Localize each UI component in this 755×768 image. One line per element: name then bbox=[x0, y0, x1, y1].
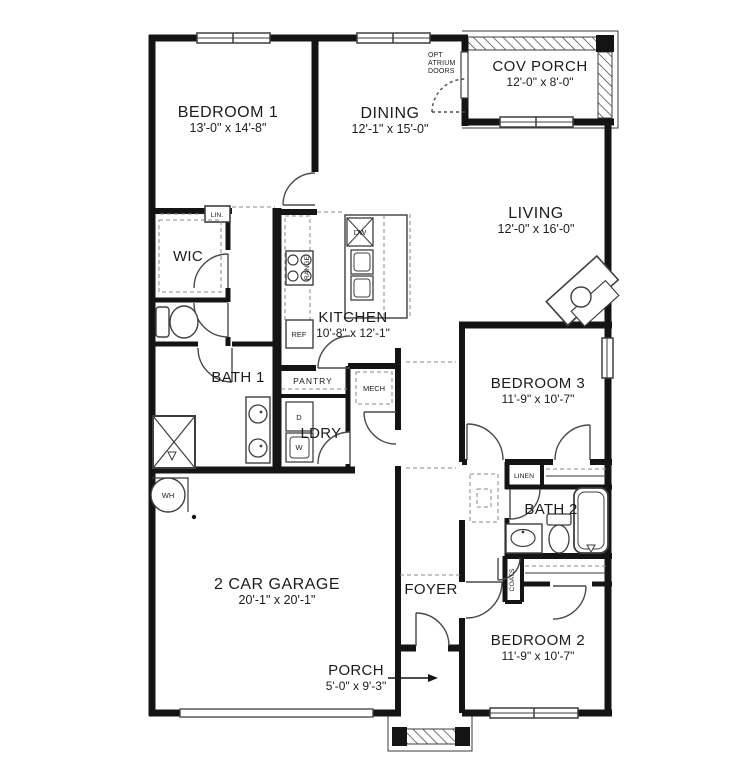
range: RANGE bbox=[286, 251, 313, 285]
coats-label: COATS bbox=[509, 568, 516, 591]
bedroom2-dims: 11'-9" x 10'-7" bbox=[502, 649, 575, 663]
floor-plan-page: LIN. WH bbox=[0, 0, 755, 768]
front-porch-hatched-base bbox=[392, 727, 470, 746]
wic-label: WIC bbox=[173, 248, 203, 265]
dishwasher: DW bbox=[347, 218, 373, 246]
dining-window bbox=[357, 33, 430, 43]
bedroom2-closet-rod bbox=[525, 566, 606, 573]
dining-dims: 12'-1" x 15'-0" bbox=[352, 122, 429, 136]
linen-label: LINEN bbox=[514, 473, 534, 480]
ref-label: REF bbox=[292, 330, 307, 339]
refrigerator: REF bbox=[286, 320, 313, 348]
bedroom2-label: BEDROOM 2 bbox=[491, 632, 586, 649]
bath1-label: BATH 1 bbox=[211, 369, 264, 386]
garage-label: 2 CAR GARAGE bbox=[214, 576, 340, 593]
bedroom2-door bbox=[466, 582, 502, 618]
kitchen-dims: 10'-8" x 12'-1" bbox=[316, 326, 390, 340]
bedroom3-window bbox=[602, 338, 613, 378]
floor-plan-drawing: LIN. WH bbox=[0, 0, 755, 768]
mech-door bbox=[364, 412, 396, 444]
bath2-label: BATH 2 bbox=[524, 501, 577, 518]
dryer-label: D bbox=[296, 413, 302, 422]
linen-closet: LINEN bbox=[514, 473, 534, 480]
kitchen-island: DW bbox=[345, 215, 407, 318]
bedroom1-window bbox=[197, 33, 270, 43]
porch-dims: 5'-0" x 9'-3" bbox=[326, 679, 386, 693]
porch-label: PORCH bbox=[328, 662, 384, 679]
bedroom2-closet-door bbox=[553, 586, 586, 619]
bedroom3-door bbox=[467, 424, 503, 460]
cov-porch-window bbox=[500, 117, 573, 127]
bedroom1-dims: 13'-0" x 14'-8" bbox=[190, 121, 267, 135]
dining-label: DINING bbox=[361, 105, 420, 122]
coats-closet: COATS bbox=[509, 568, 516, 591]
pantry-label: PANTRY bbox=[293, 376, 333, 386]
bedroom1-label: BEDROOM 1 bbox=[178, 104, 279, 121]
bedroom1-door bbox=[283, 173, 315, 205]
garage-dims: 20'-1" x 20'-1" bbox=[239, 593, 316, 607]
tub-bath2 bbox=[574, 488, 608, 553]
atrium-note-line3: DOORS bbox=[428, 68, 455, 75]
bedroom3-closet-door bbox=[555, 425, 590, 460]
atrium-note-line1: OPT bbox=[428, 52, 444, 59]
lin-label: LIN. bbox=[211, 212, 224, 219]
toilet-bath2 bbox=[547, 514, 571, 553]
vanity-bath2 bbox=[506, 524, 542, 553]
front-door bbox=[416, 613, 449, 646]
washer-label: W bbox=[295, 443, 303, 452]
bedroom3-label: BEDROOM 3 bbox=[491, 375, 586, 392]
mech-label: MECH bbox=[363, 384, 385, 393]
opt-atrium-doors-note: OPT ATRIUM DOORS bbox=[428, 52, 456, 75]
cov-porch-label: COV PORCH bbox=[492, 58, 587, 75]
toilet-bath1 bbox=[156, 306, 198, 338]
foyer-label: FOYER bbox=[404, 581, 457, 598]
kitchen-hall-door bbox=[318, 336, 350, 368]
garage-door-opening bbox=[180, 709, 373, 717]
water-heater: WH bbox=[151, 478, 196, 519]
atrium-note-line2: ATRIUM bbox=[428, 60, 456, 67]
dw-label: DW bbox=[354, 228, 367, 237]
wh-label: WH bbox=[162, 491, 175, 500]
bedroom3-dims: 11'-9" x 10'-7" bbox=[502, 392, 575, 406]
cov-porch-dims: 12'-0" x 8'-0" bbox=[506, 75, 573, 89]
kitchen-label: KITCHEN bbox=[318, 309, 387, 326]
toilet-room-door bbox=[194, 303, 228, 337]
ldry-label: LDRY bbox=[301, 425, 342, 442]
vanity-bath1 bbox=[246, 397, 270, 463]
living-label: LIVING bbox=[508, 205, 563, 222]
bedroom2-window bbox=[490, 708, 578, 718]
bedroom3-closet-rod bbox=[546, 469, 606, 476]
range-label: RANGE bbox=[304, 255, 311, 280]
living-dims: 12'-0" x 16'-0" bbox=[498, 222, 575, 236]
mech-closet: MECH bbox=[356, 372, 392, 404]
shower-bath1 bbox=[153, 416, 195, 468]
attic-access bbox=[470, 474, 498, 522]
